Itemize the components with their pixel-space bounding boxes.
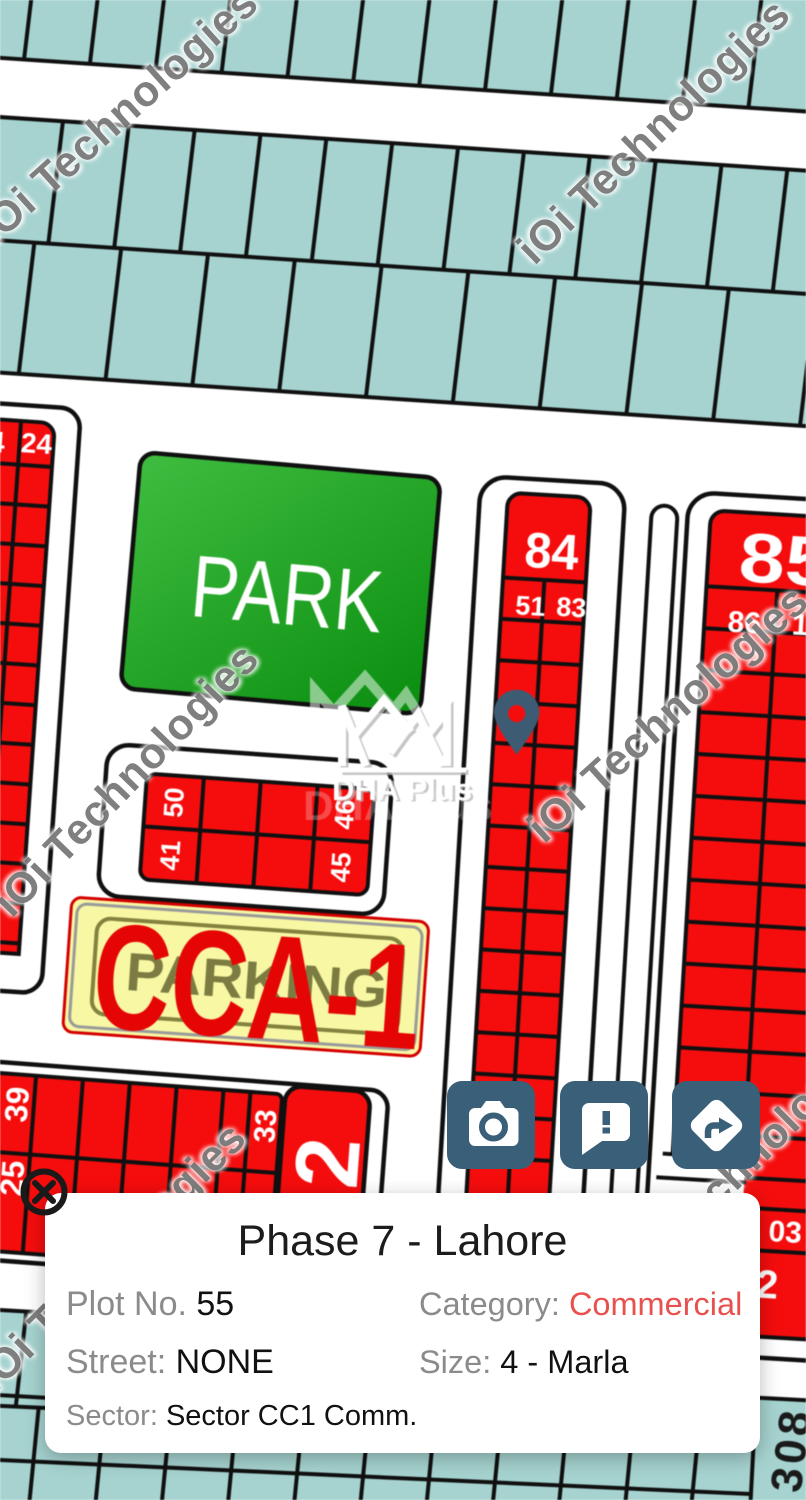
svg-text:50: 50 — [158, 786, 190, 818]
svg-text:CCA-1: CCA-1 — [88, 891, 427, 1081]
svg-text:39: 39 — [0, 1085, 36, 1123]
svg-text:83: 83 — [555, 592, 587, 624]
svg-text:45: 45 — [325, 851, 357, 883]
svg-text:PARK: PARK — [187, 536, 387, 651]
svg-text:84: 84 — [523, 522, 580, 581]
svg-text:DHA Plus: DHA Plus — [303, 782, 493, 829]
svg-text:51: 51 — [514, 590, 546, 622]
svg-text:33: 33 — [248, 1108, 283, 1144]
svg-text:41: 41 — [154, 839, 186, 871]
svg-text:24: 24 — [20, 427, 54, 460]
svg-text:03: 03 — [768, 1215, 803, 1250]
